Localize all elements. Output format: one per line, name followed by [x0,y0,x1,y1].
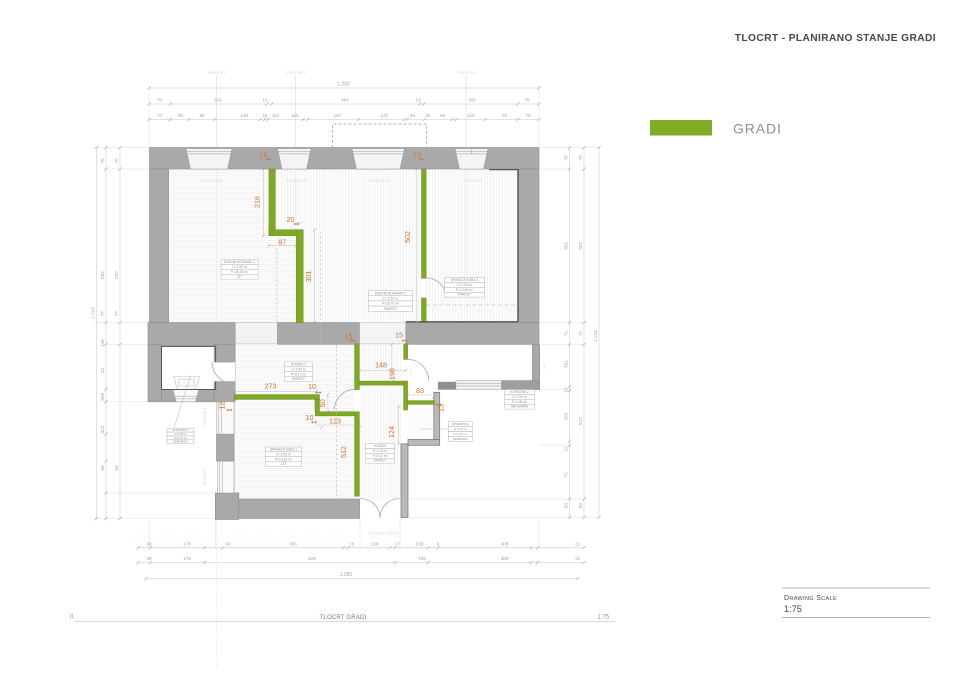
svg-text:115: 115 [291,113,299,118]
svg-text:43: 43 [100,368,105,374]
svg-text:178: 178 [183,542,191,547]
svg-text:183: 183 [564,412,569,420]
svg-text:H: 2.50 m: H: 2.50 m [457,283,472,287]
svg-text:72: 72 [564,472,569,478]
svg-text:1.280: 1.280 [337,82,350,88]
svg-text:P=8.17 m²: P=8.17 m² [291,372,307,376]
svg-text:110: 110 [272,113,280,118]
svg-text:77: 77 [100,311,105,317]
svg-text:15: 15 [425,113,431,118]
svg-text:502: 502 [578,242,583,250]
svg-text:502: 502 [100,271,105,279]
svg-text:21: 21 [575,542,581,547]
svg-text:GRADI: GRADI [733,121,782,137]
svg-text:83: 83 [416,386,424,395]
svg-text:140: 140 [100,339,105,347]
svg-text:P=1.00 m²: P=1.00 m² [453,432,466,436]
svg-text:137: 137 [381,113,389,118]
svg-text:626: 626 [308,556,316,561]
svg-text:70: 70 [525,113,531,118]
svg-text:P=9.02 m²: P=9.02 m² [372,454,388,458]
svg-text:P=3.48 m²: P=3.48 m² [512,400,528,404]
svg-text:H: 2.32 m: H: 2.32 m [373,449,388,453]
svg-text:LŽT: LŽT [237,274,243,279]
svg-text:PARKET: PARKET [292,377,305,381]
svg-text:115: 115 [467,113,475,118]
svg-text:308: 308 [501,542,509,547]
svg-text:149: 149 [240,113,248,118]
svg-text:KERAMIKA: KERAMIKA [453,437,468,441]
svg-text:SPREMIŠTE: SPREMIŠTE [452,421,469,426]
svg-text:501: 501 [564,360,569,368]
svg-text:TLOCRT - PLANIRANO STANJE GRAD: TLOCRT - PLANIRANO STANJE GRADI [735,33,936,44]
svg-text:85: 85 [199,113,205,118]
svg-text:70: 70 [157,113,163,118]
svg-text:PROZOR 149: PROZOR 149 [201,179,222,183]
svg-text:P=25.70 m²: P=25.70 m² [382,302,400,306]
svg-text:H: 2.00 m: H: 2.00 m [454,427,467,431]
svg-text:71: 71 [578,330,583,336]
svg-text:15: 15 [349,542,355,547]
svg-text:502: 502 [564,242,569,250]
svg-text:P=26.26 m²: P=26.26 m² [231,270,249,274]
svg-text:167: 167 [334,113,342,118]
svg-text:1:75: 1:75 [597,615,609,621]
svg-text:70: 70 [578,155,583,161]
svg-text:178: 178 [183,556,191,561]
svg-text:17: 17 [394,542,400,547]
svg-text:70: 70 [564,155,569,161]
svg-text:60: 60 [114,465,119,471]
svg-text:13: 13 [415,98,421,103]
svg-text:PROZOR 5: PROZOR 5 [203,468,207,485]
svg-text:15: 15 [262,98,268,103]
svg-text:H: 2.50 m: H: 2.50 m [232,265,247,269]
svg-text:H: 2.53 m: H: 2.53 m [276,452,291,456]
svg-text:70: 70 [100,158,105,164]
svg-text:20: 20 [287,215,295,224]
svg-text:308: 308 [501,556,509,561]
svg-text:PROZOR 108: PROZOR 108 [286,179,307,183]
svg-text:96: 96 [440,113,446,118]
svg-text:87: 87 [278,238,286,247]
svg-text:123: 123 [329,417,341,426]
svg-text:502: 502 [114,271,119,279]
svg-text:10: 10 [306,413,314,422]
svg-text:124: 124 [387,426,396,438]
svg-text:H: 2.50 m: H: 2.50 m [291,367,306,371]
svg-text:50: 50 [318,399,327,407]
svg-text:KERAMIKA: KERAMIKA [511,405,529,409]
svg-text:138: 138 [371,542,379,547]
svg-text:512: 512 [339,446,348,458]
svg-text:323: 323 [100,425,105,433]
svg-text:15: 15 [345,332,353,341]
svg-text:13: 13 [413,151,421,160]
svg-text:10: 10 [308,382,316,391]
svg-text:PROZOR 3: PROZOR 3 [458,71,476,75]
svg-text:LŽT: LŽT [281,461,287,466]
svg-text:301: 301 [304,271,313,283]
svg-text:70: 70 [157,98,163,103]
svg-text:70: 70 [114,158,119,164]
svg-text:39: 39 [146,542,152,547]
svg-text:HODNIK 1: HODNIK 1 [291,363,307,367]
svg-text:12 12: 12 12 [409,368,413,377]
svg-text:60: 60 [578,503,583,509]
svg-text:15: 15 [564,387,569,393]
svg-text:15: 15 [395,331,403,340]
svg-text:ULAZNA VRATA: ULAZNA VRATA [368,532,398,536]
svg-text:39: 39 [146,556,152,561]
svg-text:70: 70 [524,98,530,103]
svg-text:506: 506 [100,393,105,401]
svg-text:KERAMIKA: KERAMIKA [173,440,188,444]
svg-text:108: 108 [418,556,426,561]
svg-text:H: 2.50 m: H: 2.50 m [383,297,398,301]
svg-text:PROZOR 2: PROZOR 2 [287,71,305,75]
svg-text:21: 21 [575,556,581,561]
svg-text:60: 60 [100,465,105,471]
svg-text:15: 15 [564,446,569,452]
svg-text:SPAVAĆA SOBA 2: SPAVAĆA SOBA 2 [451,277,478,282]
svg-text:SPAVAĆA SOBA 1: SPAVAĆA SOBA 1 [270,447,297,452]
svg-text:0.: 0. [70,615,75,621]
svg-text:396: 396 [289,542,297,547]
svg-text:13: 13 [437,404,446,412]
svg-text:PROZOR 1: PROZOR 1 [208,71,226,75]
svg-text:524: 524 [214,98,222,103]
svg-text:484: 484 [341,98,349,103]
svg-text:DNEVNI BORAVAK 2: DNEVNI BORAVAK 2 [375,291,407,295]
svg-text:512: 512 [578,417,583,425]
svg-text:PROZOR 96: PROZOR 96 [463,179,482,183]
svg-text:12: 12 [542,365,546,369]
svg-text:216: 216 [253,196,262,208]
svg-text:PARKET: PARKET [384,307,397,311]
svg-text:PROZOR 167: PROZOR 167 [370,179,391,183]
svg-text:15: 15 [260,151,268,160]
svg-text:H: 2.08 m: H: 2.08 m [512,395,527,399]
svg-text:PROZOR 4: PROZOR 4 [203,408,207,425]
svg-text:0: 0 [437,542,440,547]
svg-text:148: 148 [375,360,387,369]
svg-text:108: 108 [416,542,424,547]
svg-text:60: 60 [564,503,569,509]
svg-text:77: 77 [114,311,119,317]
svg-text:12: 12 [218,402,227,410]
svg-text:273: 273 [265,381,277,390]
svg-text:DRAWING SCALE: DRAWING SCALE [784,595,837,602]
svg-text:TLOCRT GRADI: TLOCRT GRADI [320,615,367,621]
svg-text:1.215: 1.215 [593,330,598,342]
svg-text:PARKET: PARKET [374,459,387,463]
svg-text:15: 15 [262,113,268,118]
svg-text:P=13.32 m²: P=13.32 m² [275,457,293,461]
svg-text:PARKET: PARKET [458,293,471,297]
svg-text:55: 55 [410,113,416,118]
svg-text:HODNIK: HODNIK [374,444,388,448]
svg-text:198: 198 [388,368,397,380]
svg-text:1:75: 1:75 [784,604,802,614]
svg-text:60: 60 [178,113,184,118]
svg-text:1.280: 1.280 [340,572,353,578]
svg-text:P=12.60 m²: P=12.60 m² [456,288,474,292]
svg-text:305: 305 [468,98,476,103]
svg-text:502: 502 [403,231,412,243]
svg-text:93: 93 [502,113,508,118]
svg-text:DNEVNI BORAVAK 1: DNEVNI BORAVAK 1 [224,260,256,264]
svg-text:1.215: 1.215 [91,307,96,319]
svg-text:KUPAONA 2: KUPAONA 2 [510,390,529,394]
svg-text:71: 71 [564,330,569,336]
svg-text:60: 60 [225,542,231,547]
